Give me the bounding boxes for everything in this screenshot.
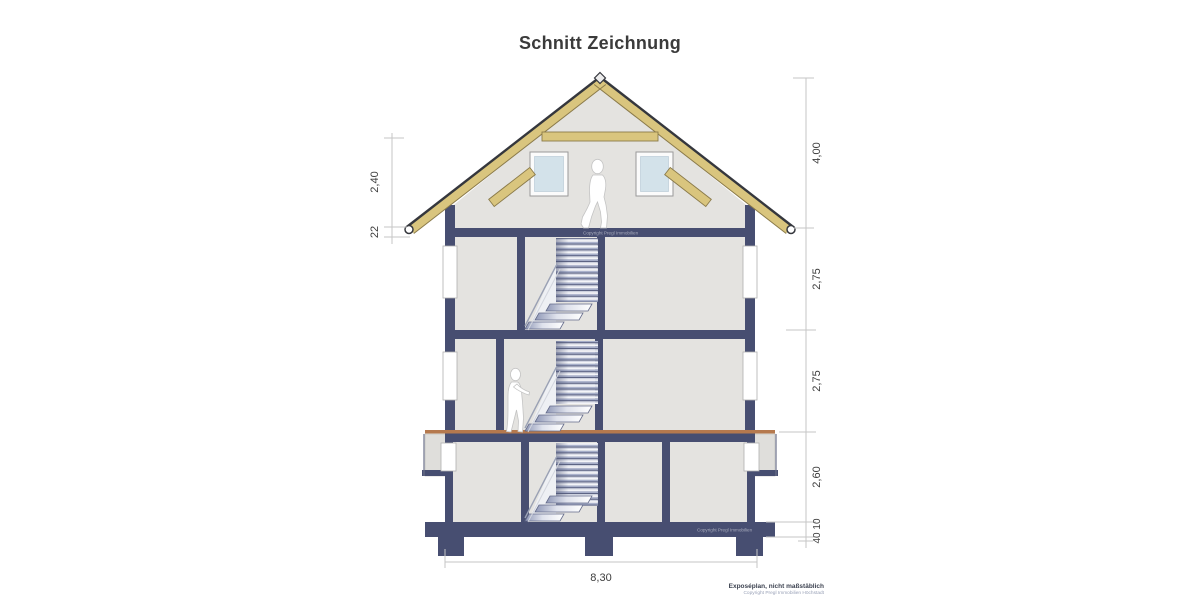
winder-step <box>535 505 583 512</box>
winder-step <box>546 496 592 503</box>
window-glass <box>641 157 669 192</box>
window-opening-kg-left <box>441 443 456 471</box>
light-well-edge-right <box>775 434 777 476</box>
interior-wall-eg-left <box>496 339 504 433</box>
window-glass <box>535 157 564 192</box>
interior-wall-kg-left <box>521 442 529 522</box>
house-section-drawing: Copyright Pregl Immobilien Copyright Pre… <box>0 0 1200 600</box>
window-opening-kg-right <box>744 443 759 471</box>
footing-center <box>585 537 613 556</box>
dim-label-upper-floor-height: 2,75 <box>811 268 823 289</box>
dim-label-building-width: 8,30 <box>590 572 611 584</box>
watermark-upper-slab: Copyright Pregl Immobilien <box>583 231 639 236</box>
window-opening-og-right <box>743 246 757 298</box>
dim-label-slab-footing: 40 10 <box>812 518 823 543</box>
light-well-edge-left <box>423 434 425 476</box>
interior-wall-og-left <box>517 237 525 330</box>
stair-run-shade-eg <box>556 341 598 404</box>
exterior-wall-right <box>745 205 755 437</box>
interior-wall-og-right <box>597 237 605 330</box>
footing-right <box>736 537 763 556</box>
terrain-line <box>425 430 775 434</box>
footer: Exposéplan, nicht maßstäblich Copyright … <box>700 583 824 597</box>
winder-step <box>535 313 583 320</box>
gutter-right <box>787 226 795 234</box>
stair-run-shade-og <box>556 238 598 302</box>
attic-window-left <box>530 152 568 196</box>
winder-step <box>546 304 592 311</box>
footing-left <box>438 537 464 556</box>
winder-step <box>546 406 592 413</box>
window-opening-og-left <box>443 246 457 298</box>
exterior-wall-left <box>445 205 455 437</box>
window-opening-eg-left <box>443 352 457 400</box>
dim-label-roof-height: 4,00 <box>811 142 823 163</box>
interior-wall-kg-mid <box>597 442 605 522</box>
dim-label-knee-wall: 22 <box>369 226 381 238</box>
dim-label-ground-floor-height: 2,75 <box>811 370 823 391</box>
collar-beam <box>542 132 658 141</box>
upper-floor-slab <box>445 330 755 339</box>
dim-label-attic-height: 2,40 <box>369 171 381 192</box>
footer-note: Exposéplan, nicht maßstäblich <box>700 583 824 591</box>
watermark-lower-slab: Copyright Pregl Immobilien <box>697 528 753 533</box>
ground-floor-slab <box>445 433 755 442</box>
winder-step <box>535 415 583 422</box>
footer-copyright: Copyright Pregl Immobilien Höchstadt <box>700 591 824 597</box>
section-drawing-page: Schnitt Zeichnung <box>0 0 1200 600</box>
dim-label-basement-height: 2,60 <box>811 466 823 487</box>
interior-wall-kg-right <box>662 442 670 522</box>
window-opening-eg-right <box>743 352 757 400</box>
